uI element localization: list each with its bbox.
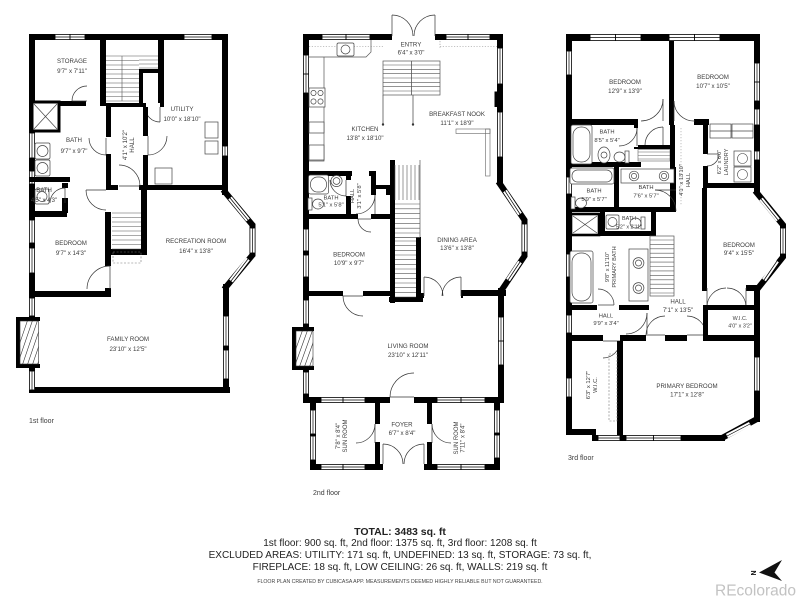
svg-text:9'4" x 15'5": 9'4" x 15'5": [724, 250, 754, 257]
svg-text:BATH: BATH: [599, 130, 614, 136]
svg-text:SUN ROOM: SUN ROOM: [454, 421, 460, 454]
svg-text:UTILITY: UTILITY: [171, 106, 194, 113]
svg-text:BATH: BATH: [622, 216, 636, 222]
svg-text:SUN ROOM: SUN ROOM: [343, 419, 349, 452]
svg-text:PRIMARY BATH: PRIMARY BATH: [612, 246, 618, 287]
svg-text:4'1" x 13'10": 4'1" x 13'10": [679, 164, 685, 196]
svg-text:3rd floor: 3rd floor: [568, 455, 594, 462]
svg-text:5'2" x 2'11": 5'2" x 2'11": [616, 225, 642, 231]
svg-text:HALL: HALL: [350, 188, 356, 203]
svg-text:RECREATION ROOM: RECREATION ROOM: [166, 238, 227, 245]
svg-text:HALL: HALL: [670, 299, 686, 306]
svg-text:12'9" x 13'9": 12'9" x 13'9": [608, 88, 642, 95]
svg-text:LIVING ROOM: LIVING ROOM: [388, 343, 429, 350]
svg-text:DINING AREA: DINING AREA: [437, 237, 477, 244]
svg-text:23'10" x 12'11": 23'10" x 12'11": [388, 352, 428, 359]
svg-text:5'1" x 5'8": 5'1" x 5'8": [318, 203, 343, 209]
svg-text:BATH: BATH: [586, 189, 601, 195]
svg-text:1st floor: 1st floor: [29, 418, 55, 425]
svg-text:W.I.C.: W.I.C.: [593, 377, 599, 393]
svg-text:7'6" x 5'7": 7'6" x 5'7": [633, 194, 658, 200]
svg-text:N: N: [751, 570, 758, 575]
svg-text:BREAKFAST NOOK: BREAKFAST NOOK: [429, 111, 486, 118]
svg-text:5'9" x 5'7": 5'9" x 5'7": [581, 197, 606, 203]
svg-text:9'8" x 11'10": 9'8" x 11'10": [605, 252, 611, 282]
svg-text:9'9" x 3'4": 9'9" x 3'4": [593, 321, 618, 327]
svg-text:BEDROOM: BEDROOM: [697, 74, 729, 81]
svg-text:10'0" x 18'10": 10'0" x 18'10": [163, 116, 200, 123]
svg-text:4'0" x 3'2": 4'0" x 3'2": [728, 324, 752, 330]
svg-text:13'8" x 18'10": 13'8" x 18'10": [346, 135, 383, 142]
svg-text:HALL: HALL: [599, 314, 614, 320]
svg-text:9'7" x 14'3": 9'7" x 14'3": [56, 250, 86, 257]
svg-text:9'7" x 7'11": 9'7" x 7'11": [57, 68, 87, 75]
svg-text:PRIMARY BEDROOM: PRIMARY BEDROOM: [656, 383, 717, 390]
svg-text:4'1" x 10'2": 4'1" x 10'2": [122, 130, 129, 160]
svg-text:11'1" x 18'9": 11'1" x 18'9": [440, 120, 473, 127]
svg-text:EXCLUDED AREAS: UTILITY: 171 s: EXCLUDED AREAS: UTILITY: 171 sq. ft, UND…: [209, 550, 592, 561]
svg-text:7'8" x 8'4": 7'8" x 8'4": [336, 423, 342, 449]
svg-text:10'7" x 10'5": 10'7" x 10'5": [696, 83, 730, 90]
svg-text:6'3" x 12'7": 6'3" x 12'7": [586, 371, 592, 400]
svg-text:8'5" x 5'4": 8'5" x 5'4": [594, 138, 619, 144]
svg-text:HALL: HALL: [129, 137, 136, 153]
svg-text:FOYER: FOYER: [391, 422, 413, 429]
svg-text:TOTAL: 3483 sq. ft: TOTAL: 3483 sq. ft: [354, 526, 446, 538]
svg-text:6'4" x 3'0": 6'4" x 3'0": [398, 50, 425, 57]
svg-text:7'11" x 8'4": 7'11" x 8'4": [461, 423, 467, 452]
svg-text:BEDROOM: BEDROOM: [609, 79, 641, 86]
svg-text:BATH: BATH: [638, 185, 653, 191]
svg-text:REcolorado: REcolorado: [715, 583, 796, 600]
svg-text:ENTRY: ENTRY: [401, 42, 422, 49]
svg-text:BEDROOM: BEDROOM: [723, 242, 755, 249]
svg-text:BATH: BATH: [323, 196, 338, 202]
svg-text:FIREPLACE: 18 sq. ft, LOW CEIL: FIREPLACE: 18 sq. ft, LOW CEILING: 26 sq…: [253, 562, 548, 573]
svg-text:FLOOR PLAN CREATED BY CUBICASA: FLOOR PLAN CREATED BY CUBICASA APP. MEAS…: [257, 579, 542, 585]
svg-text:16'4" x 13'8": 16'4" x 13'8": [179, 248, 213, 255]
svg-text:6'7" x 8'4": 6'7" x 8'4": [389, 430, 416, 437]
svg-text:KITCHEN: KITCHEN: [352, 126, 379, 133]
svg-text:13'6" x 13'8": 13'6" x 13'8": [440, 245, 474, 252]
svg-text:7'1" x 13'5": 7'1" x 13'5": [663, 307, 693, 314]
svg-text:10'9" x 9'7": 10'9" x 9'7": [334, 260, 364, 267]
svg-text:17'1" x 12'8": 17'1" x 12'8": [670, 392, 704, 399]
svg-text:3'1" x 5'8": 3'1" x 5'8": [357, 183, 363, 208]
svg-text:FAMILY ROOM: FAMILY ROOM: [107, 336, 149, 343]
svg-text:9'7" x 9'7": 9'7" x 9'7": [61, 148, 88, 155]
svg-text:HALL: HALL: [686, 172, 692, 187]
svg-text:6'2" x 6'0": 6'2" x 6'0": [717, 150, 723, 174]
svg-text:23'10" x 12'5": 23'10" x 12'5": [109, 346, 146, 353]
svg-text:BEDROOM: BEDROOM: [333, 252, 365, 259]
svg-text:2nd floor: 2nd floor: [313, 490, 341, 497]
svg-text:BEDROOM: BEDROOM: [55, 240, 87, 247]
svg-text:BATH: BATH: [66, 137, 82, 144]
svg-text:LAUNDRY: LAUNDRY: [724, 148, 730, 175]
svg-text:BATH: BATH: [36, 188, 52, 194]
svg-text:STORAGE: STORAGE: [57, 58, 87, 65]
svg-text:1st floor: 900 sq. ft, 2nd flo: 1st floor: 900 sq. ft, 2nd floor: 1375 s…: [263, 538, 537, 549]
svg-text:4'5" x 4'3": 4'5" x 4'3": [31, 198, 57, 204]
svg-text:W.I.C.: W.I.C.: [733, 316, 748, 322]
